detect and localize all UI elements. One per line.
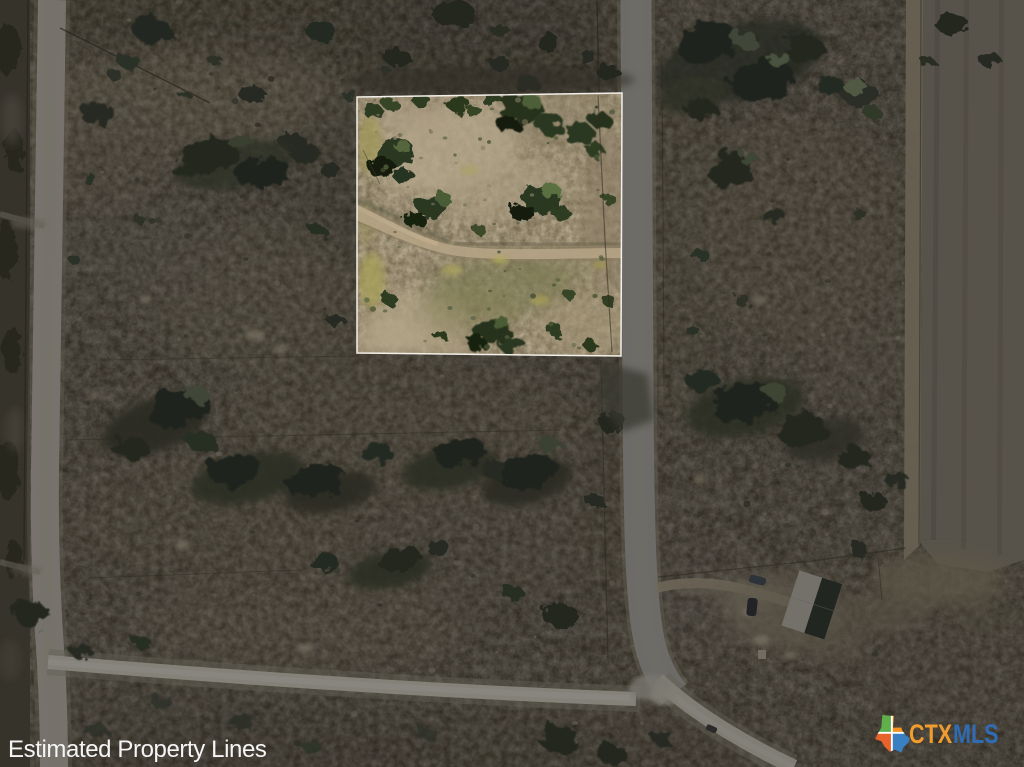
svg-text:MLS: MLS [953, 720, 999, 750]
svg-text:CTX: CTX [909, 720, 953, 750]
